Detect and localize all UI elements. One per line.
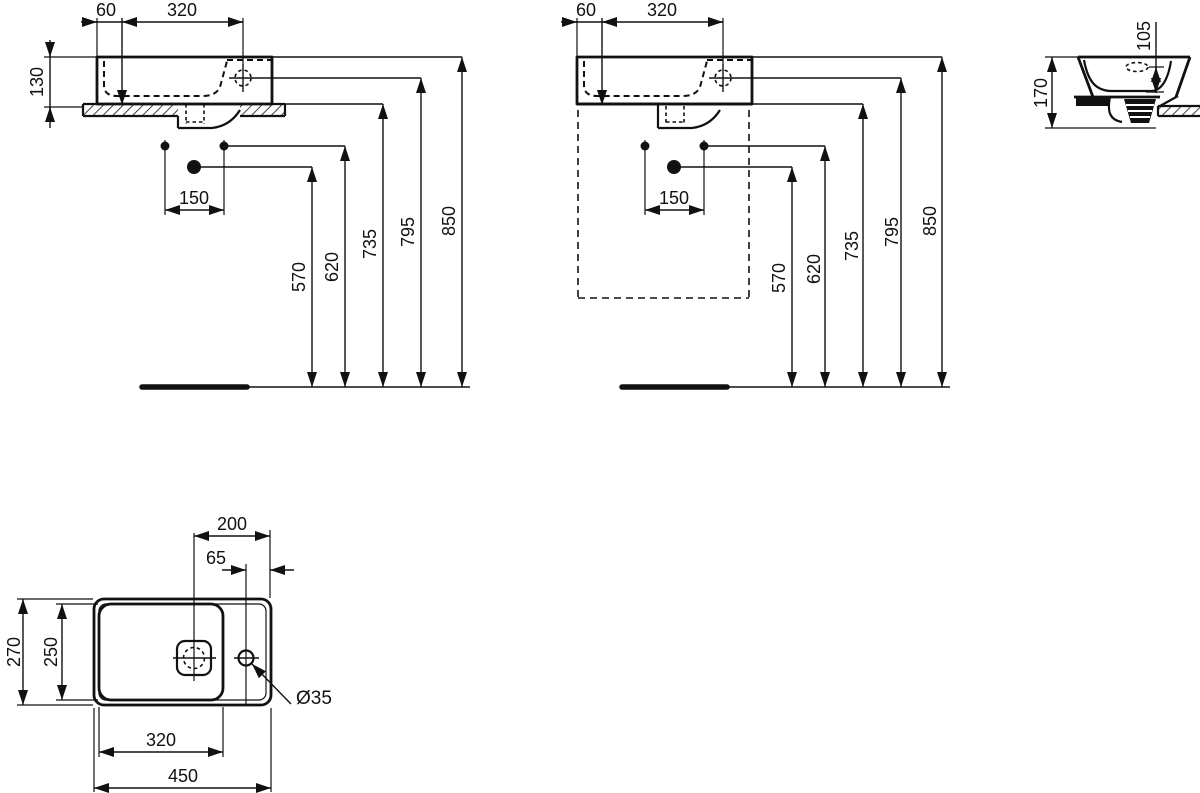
basin-outer-edge [94, 599, 271, 705]
dim-label-150: 150 [659, 188, 689, 208]
dim-label-850: 850 [920, 206, 940, 236]
dim-label-105: 105 [1134, 21, 1154, 51]
underside-block [1076, 97, 1110, 106]
dim-label-130: 130 [27, 67, 47, 97]
dim-label-250: 250 [41, 637, 61, 667]
back-wall [1176, 57, 1190, 97]
wall-connector [1160, 96, 1178, 106]
dim-label-320: 320 [647, 0, 677, 20]
dim-label-570: 570 [289, 262, 309, 292]
bowl-edge [99, 604, 223, 700]
mount-strip-hatch-right [240, 104, 285, 116]
dim-label-60: 60 [576, 0, 596, 20]
dim-label-450: 450 [168, 766, 198, 786]
drain-trap [178, 110, 240, 128]
plan-view: Ø35 200 65 270 250 320 450 [4, 514, 332, 792]
drain-trap-hidden [186, 104, 204, 124]
front-view-with-furniture: 60 320 150 570 620 735 795 850 [561, 0, 950, 387]
overflow-hidden [1126, 63, 1148, 72]
drain-trap-hidden [666, 106, 684, 124]
dim-label-570: 570 [769, 263, 789, 293]
dim-label-270: 270 [4, 637, 24, 667]
dim-label-200: 200 [217, 514, 247, 534]
dim-label-735: 735 [360, 229, 380, 259]
dim-label-620: 620 [804, 254, 824, 284]
mount-strip-hatch-left [83, 104, 178, 116]
dim-label-735: 735 [842, 231, 862, 261]
side-section-view: 105 170 [1031, 21, 1200, 128]
dim-label-dia35: Ø35 [296, 688, 332, 709]
dim-label-60: 60 [96, 0, 116, 20]
technical-drawing-page: 60 320 130 150 570 620 735 795 850 [0, 0, 1200, 793]
front-view-wall-mounted: 60 320 130 150 570 620 735 795 850 [27, 0, 470, 387]
dim-label-850: 850 [439, 206, 459, 236]
drain-trap [658, 105, 720, 128]
dim-label-170: 170 [1031, 78, 1051, 108]
dim-label-320: 320 [146, 730, 176, 750]
drain-boss [1109, 97, 1122, 122]
dim-label-320: 320 [167, 0, 197, 20]
dim-label-150: 150 [179, 188, 209, 208]
dim-label-65: 65 [206, 548, 226, 568]
dim-label-795: 795 [882, 217, 902, 247]
dim-label-620: 620 [322, 252, 342, 282]
wall-section-hatch [1158, 106, 1200, 116]
washbasin-drawing: 60 320 130 150 570 620 735 795 850 [0, 0, 1200, 793]
dim-label-795: 795 [398, 217, 418, 247]
